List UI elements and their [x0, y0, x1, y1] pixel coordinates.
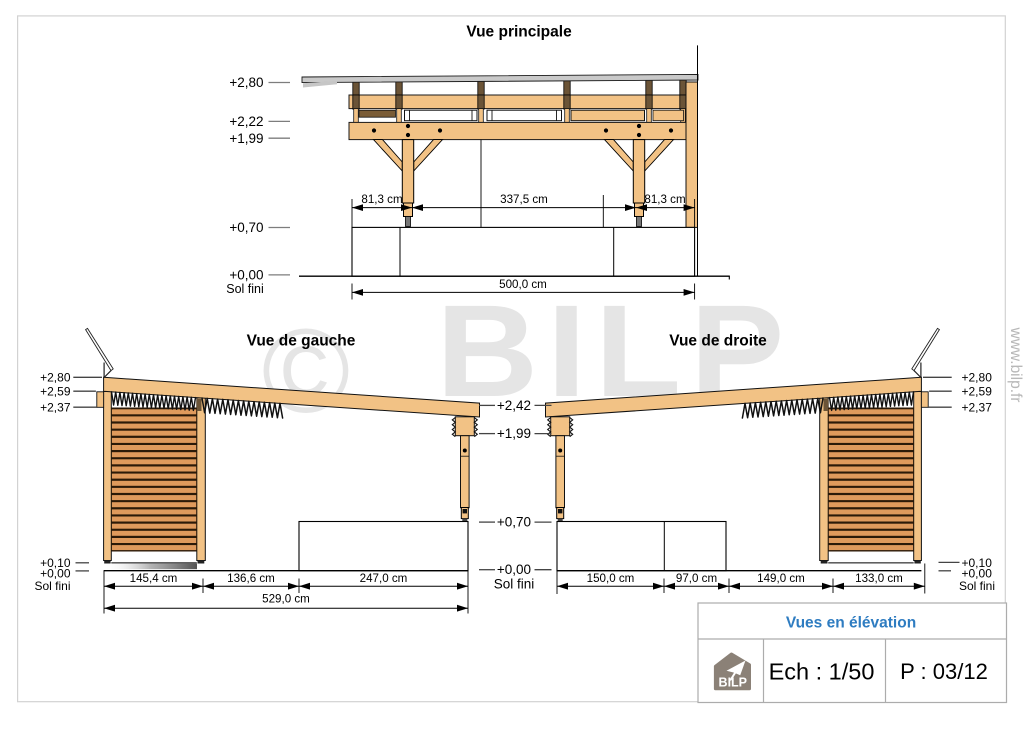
svg-text:Ech : 1/50: Ech : 1/50	[769, 659, 875, 685]
svg-text:+2,22: +2,22	[229, 114, 263, 129]
svg-text:Vue de gauche: Vue de gauche	[247, 332, 356, 349]
svg-text:Vues en élévation: Vues en élévation	[786, 615, 916, 632]
svg-text:Sol fini: Sol fini	[959, 579, 995, 593]
svg-text:+2,37: +2,37	[40, 400, 71, 414]
svg-text:Sol fini: Sol fini	[34, 579, 70, 593]
svg-text:136,6 cm: 136,6 cm	[227, 572, 275, 585]
svg-text:+0,00: +0,00	[229, 268, 263, 283]
svg-text:©: ©	[262, 304, 350, 438]
svg-text:81,3 cm: 81,3 cm	[361, 193, 402, 206]
svg-text:+0,00: +0,00	[497, 562, 531, 577]
svg-text:247,0 cm: 247,0 cm	[360, 572, 408, 585]
svg-text:150,0 cm: 150,0 cm	[587, 572, 635, 585]
svg-text:P : 03/12: P : 03/12	[900, 659, 988, 684]
svg-text:145,4 cm: 145,4 cm	[130, 572, 178, 585]
svg-text:529,0 cm: 529,0 cm	[262, 593, 310, 606]
svg-text:BILP: BILP	[719, 676, 747, 690]
svg-text:www.bilp.fr: www.bilp.fr	[1007, 327, 1024, 403]
svg-text:337,5 cm: 337,5 cm	[500, 193, 548, 206]
svg-text:+2,59: +2,59	[40, 384, 71, 398]
svg-text:+1,99: +1,99	[497, 426, 531, 441]
svg-text:+0,70: +0,70	[229, 220, 263, 235]
svg-text:500,0 cm: 500,0 cm	[499, 278, 547, 291]
svg-text:Sol fini: Sol fini	[226, 282, 264, 296]
svg-text:Vue de droite: Vue de droite	[669, 332, 767, 349]
svg-text:Sol fini: Sol fini	[494, 577, 535, 592]
svg-text:+2,42: +2,42	[497, 398, 531, 413]
svg-text:+2,37: +2,37	[962, 400, 993, 414]
svg-text:+2,59: +2,59	[962, 384, 993, 398]
svg-text:+2,80: +2,80	[40, 371, 71, 385]
svg-text:Vue principale: Vue principale	[466, 23, 572, 40]
svg-text:133,0 cm: 133,0 cm	[855, 572, 903, 585]
svg-text:97,0 cm: 97,0 cm	[676, 572, 717, 585]
svg-text:+0,70: +0,70	[497, 515, 531, 530]
svg-text:+1,99: +1,99	[229, 131, 263, 146]
svg-text:81,3 cm: 81,3 cm	[644, 193, 685, 206]
svg-text:+2,80: +2,80	[962, 371, 993, 385]
svg-text:149,0 cm: 149,0 cm	[757, 572, 805, 585]
svg-text:+2,80: +2,80	[229, 75, 263, 90]
